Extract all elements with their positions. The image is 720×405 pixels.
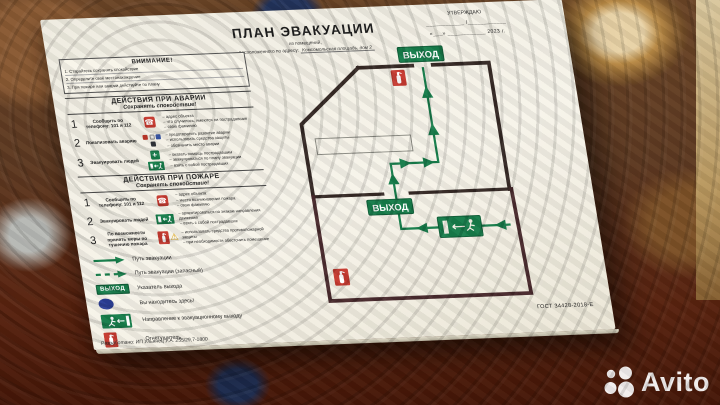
hazard-signs-icons [139,134,165,146]
info-sign-icon [149,135,155,140]
step-label: Сообщить по телефону: 101 и 112 [93,196,149,209]
evac-path-dashed-arrow-icon [93,269,129,280]
mandatory-sign-icon [155,134,161,139]
avito-logo-icon [602,365,636,399]
step-number: 3 [87,234,99,246]
exit-man-icon [155,214,175,225]
arrow-left-icon [494,220,507,231]
arrow-up-icon [420,85,433,98]
legend-label: Направление к эвакуационному выходу [142,313,243,323]
furniture-outline [315,135,413,155]
exit-man-icon [148,161,165,171]
you-are-here-icon [98,299,115,311]
avito-brand-text: Avito [641,367,710,398]
step-notes: – ориентироваться по знакам направления … [178,207,273,227]
step-label: Эвакуировать людей [97,217,152,225]
warning-triangle-icon: ⚠ [170,233,180,242]
step-notes: – предотвратить развитие аварии – исполь… [165,128,260,148]
legend-label: Указатель выхода [137,283,183,291]
fire-extinguisher-marker [390,70,407,86]
prohibition-sign-icon [142,135,148,140]
legend-label: Путь эвакуации [132,255,172,263]
phone-call-icon: ☎ [143,116,156,127]
step-number: 1 [81,197,93,209]
hazard-sign-icon [150,141,156,146]
legend-item-exit-direction: Направление к эвакуационному выходу [100,307,288,328]
floor-pattern-strip [696,0,720,300]
legend-label: Вы находитесь здесь! [139,298,194,306]
exit-man-sign-icon [100,313,132,328]
avito-watermark: Avito [602,365,710,399]
exit-man-sign [437,215,483,237]
exit-sign-top: ВЫХОД [397,46,444,63]
evacuation-plan-plate: УТВЕРЖДАЮ ____________ /____________ «__… [40,0,616,350]
middle-wall [313,189,509,197]
step-notes: – использовать средства противопожарной … [181,225,276,245]
fire-extinguisher-icon [157,231,170,244]
arrow-right-icon [423,157,436,168]
gost-standard-label: ГОСТ 34428-2018-Е [537,302,594,310]
step-label: Локализовать аварию [84,138,139,146]
arrow-up-icon [387,173,400,185]
fire-extinguisher-marker [333,268,351,285]
step-number: 1 [68,119,80,131]
instructions-column: ВНИМАНИЕ! 1. Старайтесь сохранять спокой… [59,52,293,353]
arrow-up-icon [426,123,439,136]
floor-plan: ВЫХОД ВЫХОД [272,41,550,322]
step-notes: – адрес объекта – место возникновения по… [175,188,270,208]
svg-text:ВЫХОД: ВЫХОД [372,202,410,213]
step-label: Сообщить по телефону: 101 и 112 [80,117,136,130]
svg-text:ВЫХОД: ВЫХОД [402,49,440,60]
step-notes: – оказать помощь пострадавшим – эвакуиро… [168,148,263,168]
phone-call-icon: ☎ [156,195,169,206]
first-aid-icon: + [149,151,159,160]
evac-path-solid-arrow-icon [91,255,127,266]
step-label: Эвакуировать людей [87,158,142,166]
step-number: 2 [71,137,83,149]
step-notes: – адрес объекта – что случилось, имеются… [162,110,257,130]
photo-background: УТВЕРЖДАЮ ____________ /____________ «__… [0,0,720,405]
arrow-right-icon [399,158,412,169]
step-label: По возможности принять меры по тушению п… [99,230,156,249]
attention-box: ВНИМАНИЕ! 1. Старайтесь сохранять спокой… [59,52,251,94]
exit-sign-middle: ВЫХОД [367,199,414,216]
step-number: 2 [84,216,96,228]
legend: Путь эвакуации Путь эвакуации (запасный)… [91,248,292,347]
step-number: 3 [75,157,87,169]
arrow-left-icon [415,223,428,234]
exit-sign-icon: ВЫХОД [95,283,130,294]
legend-label: Путь эвакуации (запасный) [134,268,203,277]
